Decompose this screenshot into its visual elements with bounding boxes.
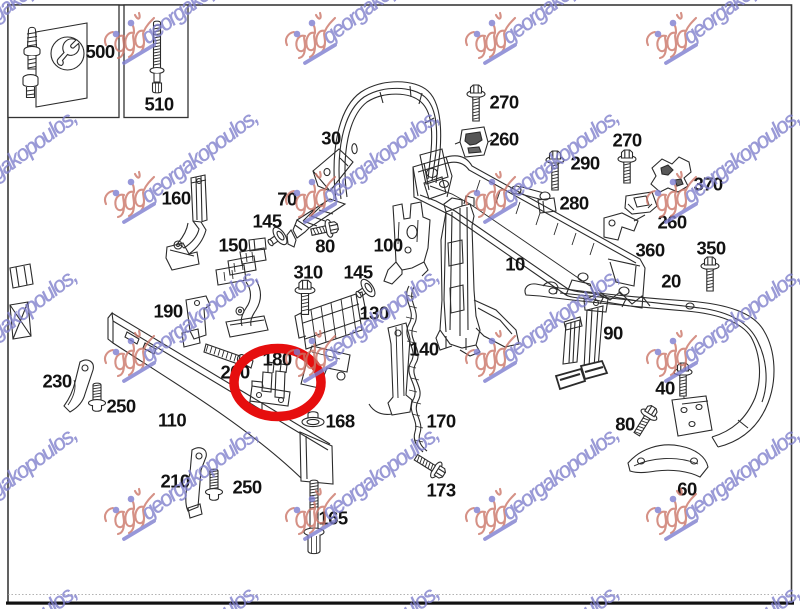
svg-text:270: 270 [612, 130, 641, 151]
svg-text:510: 510 [144, 94, 173, 115]
svg-text:90: 90 [603, 323, 623, 344]
svg-text:310: 310 [293, 262, 322, 283]
svg-text:168: 168 [325, 411, 354, 432]
svg-text:250: 250 [232, 477, 261, 498]
svg-text:260: 260 [489, 129, 518, 150]
svg-text:360: 360 [635, 240, 664, 261]
svg-text:173: 173 [426, 480, 455, 501]
svg-text:80: 80 [315, 236, 335, 257]
svg-text:500: 500 [85, 41, 114, 62]
svg-text:280: 280 [559, 193, 588, 214]
svg-text:230: 230 [42, 371, 71, 392]
svg-text:80: 80 [615, 414, 635, 435]
svg-text:110: 110 [158, 410, 186, 431]
svg-text:20: 20 [661, 271, 681, 292]
svg-text:270: 270 [489, 92, 518, 113]
svg-text:100: 100 [373, 235, 402, 256]
svg-text:145: 145 [252, 211, 281, 232]
svg-text:140: 140 [409, 339, 438, 360]
svg-text:150: 150 [218, 235, 247, 256]
svg-text:10: 10 [505, 254, 525, 275]
svg-text:350: 350 [696, 238, 725, 259]
svg-text:145: 145 [343, 262, 372, 283]
svg-text:30: 30 [321, 128, 341, 149]
svg-text:250: 250 [106, 396, 135, 417]
